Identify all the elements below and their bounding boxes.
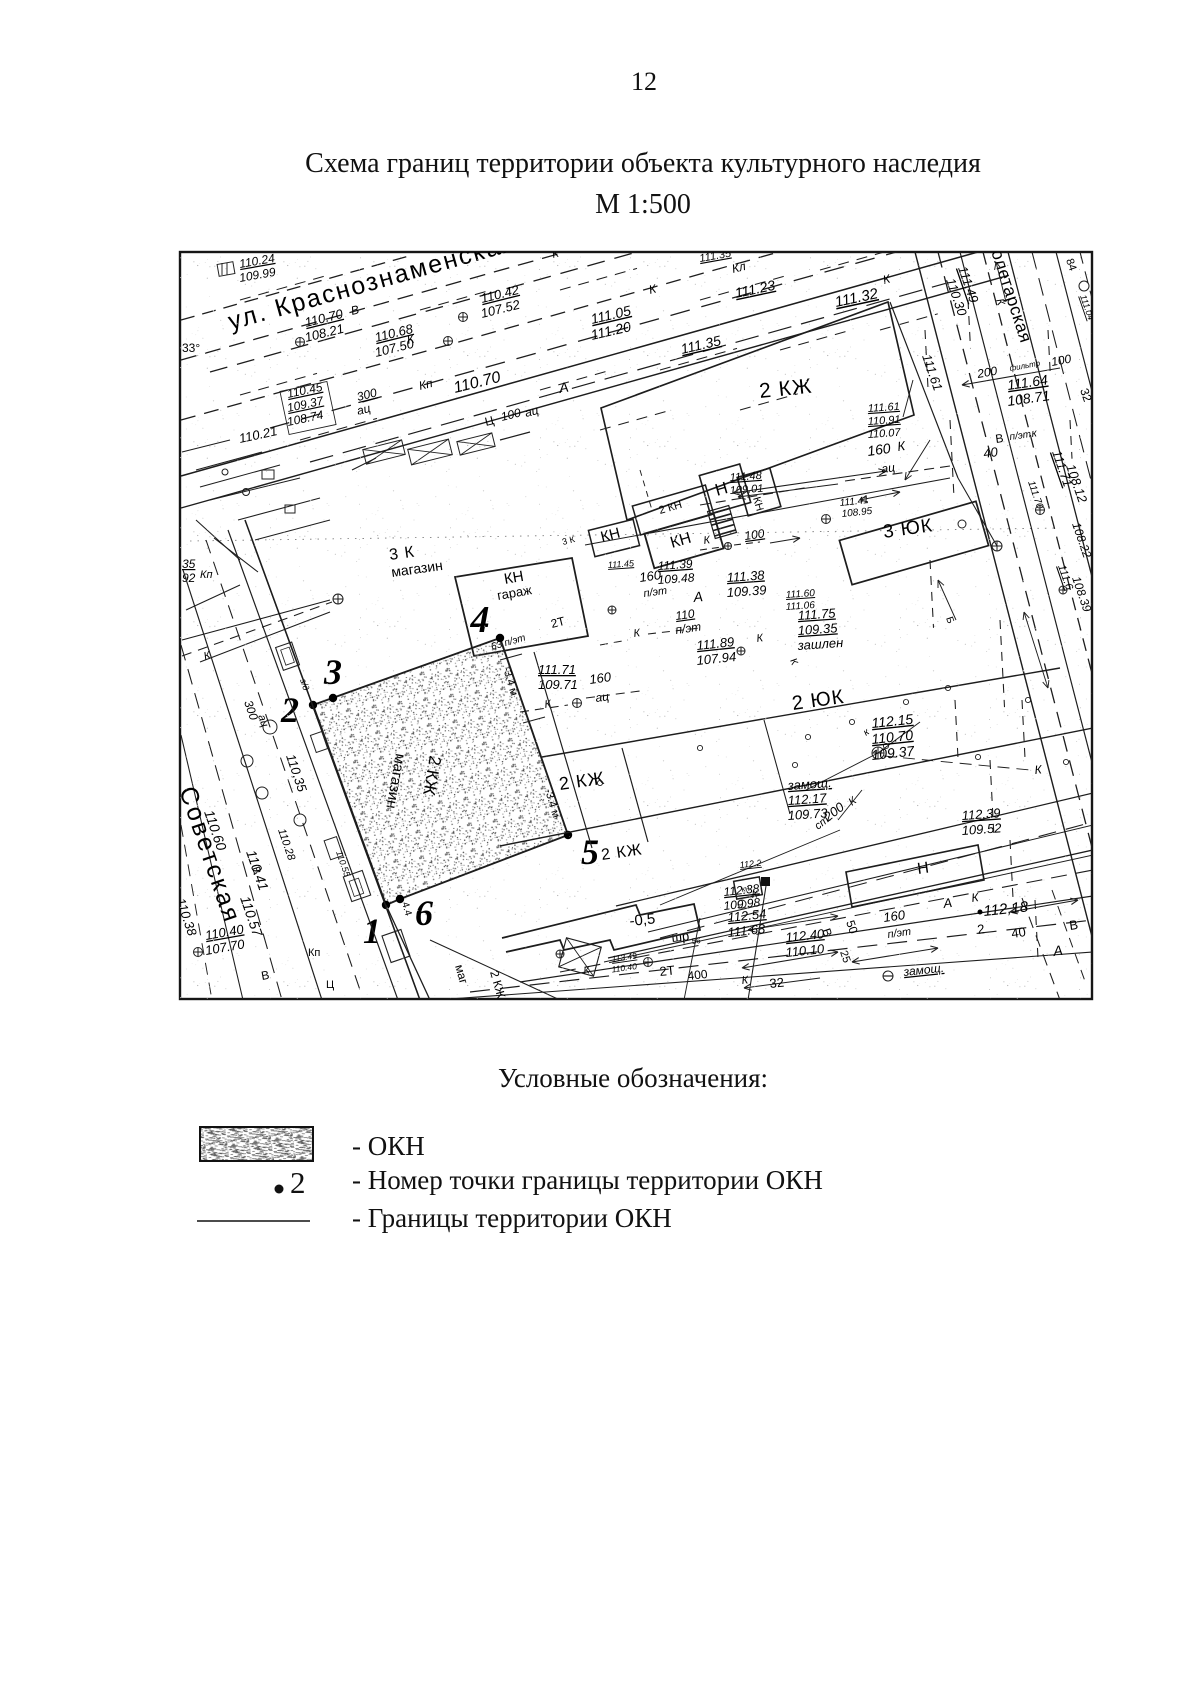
svg-text:- Номер точки границы территор: - Номер точки границы территории ОКН [352,1165,823,1195]
svg-text:- ОКН: - ОКН [352,1131,425,1161]
svg-text:2: 2 [290,1165,306,1200]
svg-text:- Границы территории ОКН: - Границы территории ОКН [352,1203,672,1233]
svg-text:М 1:500: М 1:500 [595,189,691,220]
svg-text:12: 12 [631,67,657,96]
svg-text:Условные обозначения:: Условные обозначения: [498,1063,768,1093]
svg-text:Схема границ территории объект: Схема границ территории объекта культурн… [305,148,981,179]
